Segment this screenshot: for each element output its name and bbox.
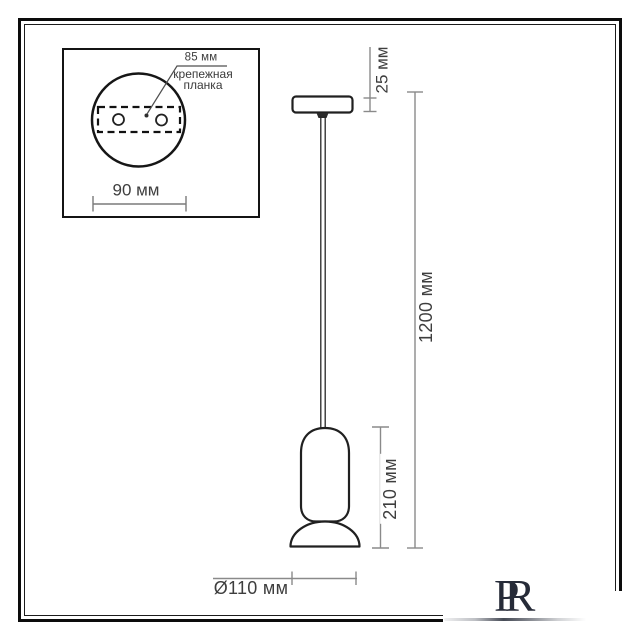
drawing-canvas: 85 мм крепежная планка 90 мм 25 мм 1200 …: [0, 0, 640, 640]
cord-connector: [317, 113, 329, 118]
label-90mm: 90 мм: [112, 182, 159, 201]
canopy-side-view: [293, 97, 353, 113]
screw-hole-right: [156, 115, 167, 126]
label-85mm: 85 мм: [185, 52, 218, 65]
brand-logo: PR: [490, 581, 590, 627]
label-25mm: 25 мм: [374, 46, 393, 93]
screw-hole-left: [113, 114, 124, 125]
label-210mm: 210 мм: [380, 454, 402, 524]
plate-center-mark: [145, 114, 149, 118]
line-art: [0, 0, 640, 640]
logo-letters: PR: [494, 573, 535, 619]
label-mounting-plate-line2: планка: [173, 80, 232, 91]
shade-body: [301, 428, 349, 522]
shade-diffuser: [291, 521, 360, 546]
label-1200mm: 1200 мм: [416, 267, 438, 347]
logo-letter-r: R: [505, 570, 536, 621]
label-mounting-plate: крепежная планка: [173, 69, 232, 91]
label-110mm: Ø110 мм: [214, 579, 289, 599]
